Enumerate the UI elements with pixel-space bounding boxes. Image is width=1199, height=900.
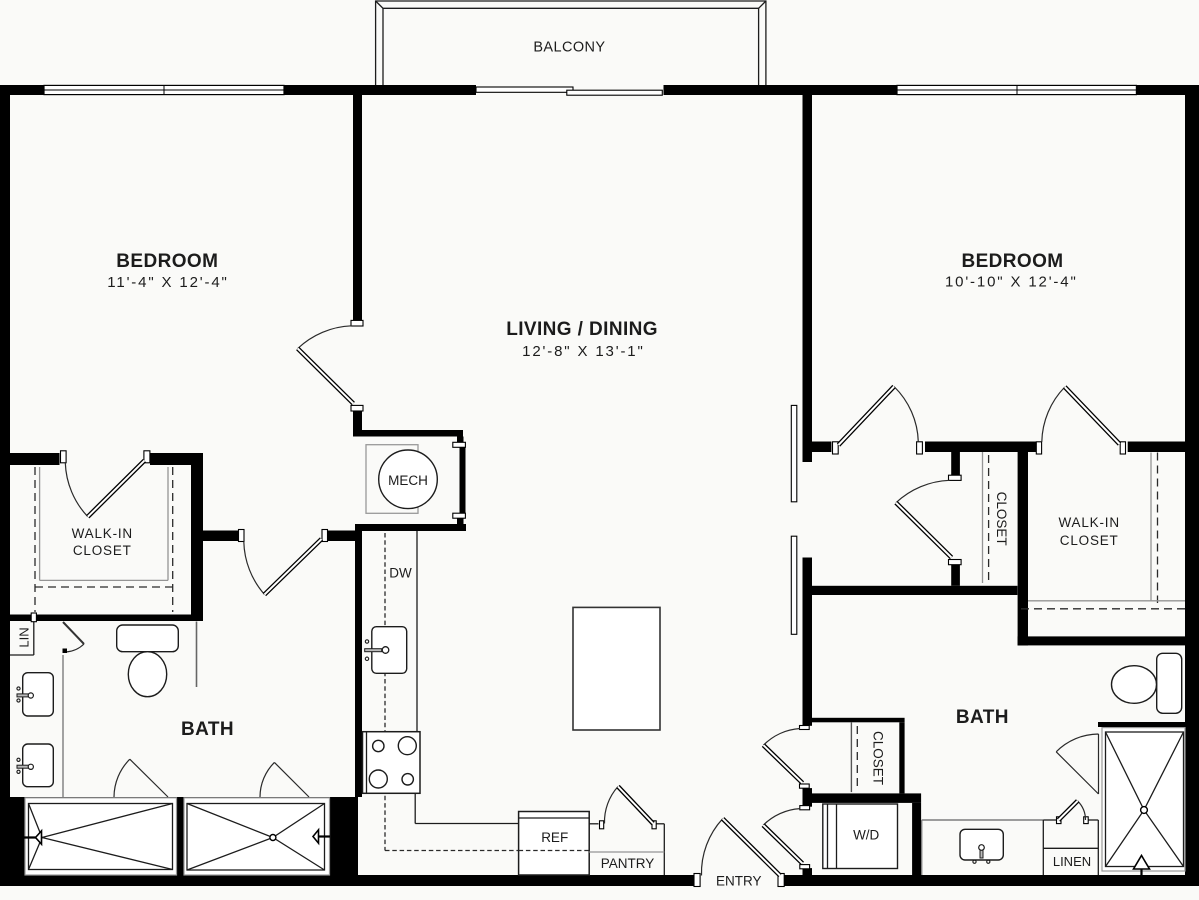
svg-text:BALCONY: BALCONY bbox=[533, 39, 605, 55]
svg-text:CLOSET: CLOSET bbox=[871, 731, 886, 785]
svg-text:BEDROOM: BEDROOM bbox=[961, 251, 1063, 272]
svg-text:PANTRY: PANTRY bbox=[601, 856, 655, 871]
svg-text:ENTRY: ENTRY bbox=[716, 874, 762, 889]
svg-text:LIVING / DINING: LIVING / DINING bbox=[506, 319, 658, 340]
svg-text:10'-10" X 12'-4": 10'-10" X 12'-4" bbox=[945, 274, 1078, 291]
svg-text:MECH: MECH bbox=[388, 473, 428, 488]
svg-text:REF: REF bbox=[541, 830, 568, 845]
svg-text:WALK-IN: WALK-IN bbox=[72, 526, 133, 541]
svg-text:CLOSET: CLOSET bbox=[994, 492, 1009, 546]
svg-text:LIN: LIN bbox=[17, 627, 32, 647]
svg-text:LINEN: LINEN bbox=[1053, 854, 1091, 869]
svg-text:BEDROOM: BEDROOM bbox=[116, 251, 218, 272]
svg-text:CLOSET: CLOSET bbox=[1060, 533, 1119, 548]
svg-text:BATH: BATH bbox=[956, 707, 1009, 728]
svg-text:CLOSET: CLOSET bbox=[73, 543, 132, 558]
svg-text:WALK-IN: WALK-IN bbox=[1059, 515, 1120, 530]
svg-text:BATH: BATH bbox=[181, 719, 234, 740]
svg-text:11'-4" X 12'-4": 11'-4" X 12'-4" bbox=[107, 274, 228, 291]
svg-text:DW: DW bbox=[389, 565, 412, 580]
svg-text:12'-8" X 13'-1": 12'-8" X 13'-1" bbox=[522, 343, 645, 360]
svg-text:W/D: W/D bbox=[853, 828, 879, 843]
